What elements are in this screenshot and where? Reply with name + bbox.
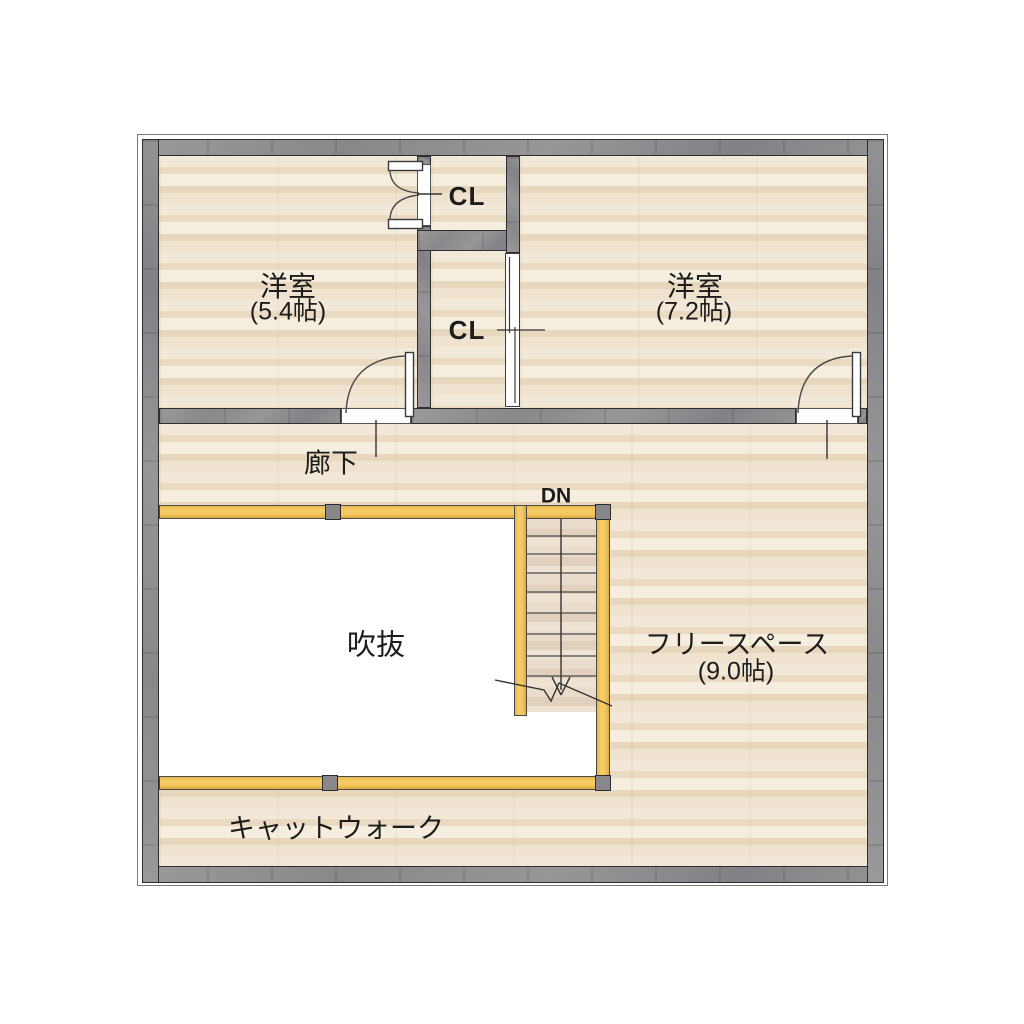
door-opening-closet-top	[417, 164, 431, 226]
stairs-floor	[527, 519, 596, 712]
railing-post-top-right	[595, 504, 611, 520]
railing-post-top-mid	[325, 504, 341, 520]
railing-stairs-left	[514, 505, 527, 716]
label-free-space-area: (9.0帖)	[698, 660, 774, 685]
void-under-stairs	[514, 712, 596, 776]
label-closet-top: CL	[449, 183, 486, 209]
door-opening-bedroom-large	[796, 408, 858, 424]
wall-outer-left	[142, 139, 159, 883]
wall-outer-right	[867, 139, 884, 883]
wall-hall-mid-segment	[411, 408, 796, 424]
void-open-area	[159, 519, 514, 776]
railing-post-bottom-mid	[322, 775, 338, 791]
wall-closet-divider	[417, 230, 520, 251]
wall-outer-bottom	[142, 866, 884, 883]
label-closet-bottom: CL	[449, 317, 486, 343]
wall-closet-west	[417, 226, 431, 408]
label-void: 吹抜	[347, 632, 405, 661]
floor-plan: 洋室 (5.4帖) CL CL 洋室 (7.2帖) 廊下 DN 吹抜 フリースペ…	[0, 0, 1024, 1024]
label-catwalk: キャットウォーク	[228, 816, 444, 843]
wall-hall-left-segment	[159, 408, 341, 424]
label-bedroom-small-area: (5.4帖)	[250, 300, 326, 325]
wall-outer-top	[142, 139, 884, 156]
closet-sliding-door	[505, 253, 520, 407]
railing-bottom	[159, 776, 610, 790]
label-stairs-down: DN	[541, 486, 571, 507]
door-opening-bedroom-small	[341, 408, 411, 424]
wall-hall-right-stub	[858, 408, 867, 424]
wall-closet-east	[506, 156, 520, 253]
label-bedroom-large-area: (7.2帖)	[656, 300, 732, 325]
label-free-space-name: フリースペース	[645, 632, 829, 659]
railing-stairs-right	[596, 505, 610, 790]
label-hallway: 廊下	[304, 451, 358, 478]
railing-post-bottom-right	[595, 775, 611, 791]
